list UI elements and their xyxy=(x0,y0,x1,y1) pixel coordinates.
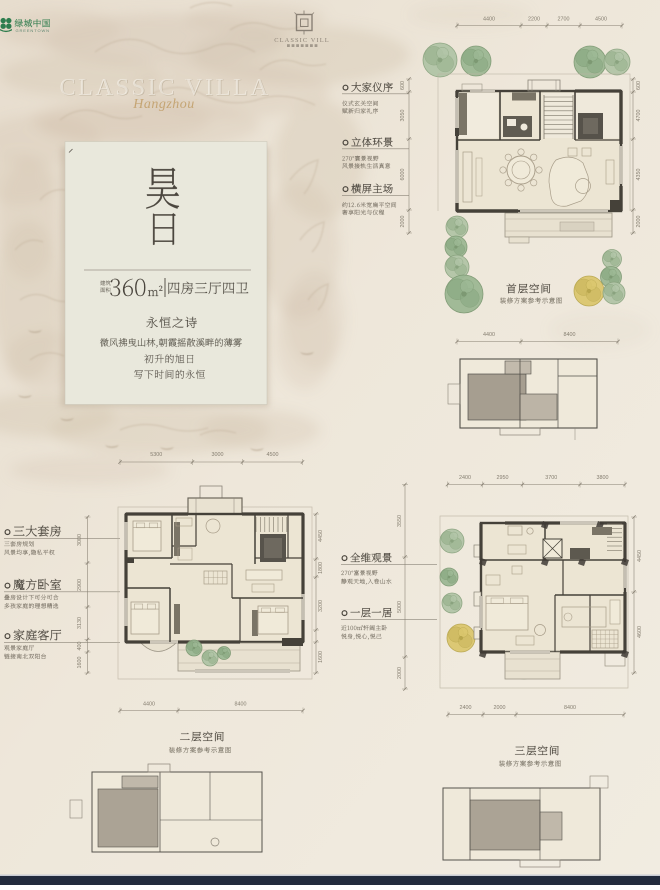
svg-text:4400: 4400 xyxy=(143,702,155,708)
svg-text:4400: 4400 xyxy=(483,332,495,338)
svg-text:3550: 3550 xyxy=(397,515,403,527)
svg-text:4500: 4500 xyxy=(267,452,279,458)
svg-text:8400: 8400 xyxy=(564,332,576,338)
svg-text:2400: 2400 xyxy=(460,705,472,711)
svg-text:8400: 8400 xyxy=(564,705,576,711)
svg-text:4450: 4450 xyxy=(318,530,324,542)
svg-text:1600: 1600 xyxy=(77,657,83,669)
svg-text:3700: 3700 xyxy=(545,475,557,481)
svg-text:3800: 3800 xyxy=(597,475,609,481)
svg-text:2200: 2200 xyxy=(528,17,540,23)
svg-text:2000: 2000 xyxy=(397,667,403,679)
svg-text:3130: 3130 xyxy=(77,617,83,629)
svg-text:2700: 2700 xyxy=(558,17,570,23)
svg-text:2900: 2900 xyxy=(77,579,83,591)
svg-text:6000: 6000 xyxy=(400,169,406,181)
svg-text:400: 400 xyxy=(77,642,83,651)
svg-text:600: 600 xyxy=(400,81,406,90)
svg-text:1600: 1600 xyxy=(318,651,324,663)
svg-text:2000: 2000 xyxy=(400,216,406,228)
svg-text:CLASSIC VILL: CLASSIC VILL xyxy=(274,37,330,44)
svg-text:3200: 3200 xyxy=(318,600,324,612)
svg-text:2400: 2400 xyxy=(459,475,471,481)
svg-text:2000: 2000 xyxy=(494,705,506,711)
svg-text:2950: 2950 xyxy=(497,475,509,481)
svg-text:GREENTOWN: GREENTOWN xyxy=(16,28,50,33)
svg-text:4600: 4600 xyxy=(637,626,643,638)
svg-text:3000: 3000 xyxy=(77,534,83,546)
svg-text:4450: 4450 xyxy=(637,550,643,562)
svg-text:4400: 4400 xyxy=(483,17,495,23)
svg-text:5000: 5000 xyxy=(397,601,403,613)
svg-text:3050: 3050 xyxy=(400,110,406,122)
svg-text:4350: 4350 xyxy=(636,169,642,181)
svg-text:1800: 1800 xyxy=(318,562,324,574)
svg-text:4700: 4700 xyxy=(636,110,642,122)
svg-text:5300: 5300 xyxy=(150,452,162,458)
svg-text:600: 600 xyxy=(636,81,642,90)
svg-text:3000: 3000 xyxy=(212,452,224,458)
svg-text:8400: 8400 xyxy=(235,702,247,708)
svg-text:2000: 2000 xyxy=(636,216,642,228)
svg-text:Hangzhou: Hangzhou xyxy=(132,97,195,112)
svg-text:4500: 4500 xyxy=(595,17,607,23)
